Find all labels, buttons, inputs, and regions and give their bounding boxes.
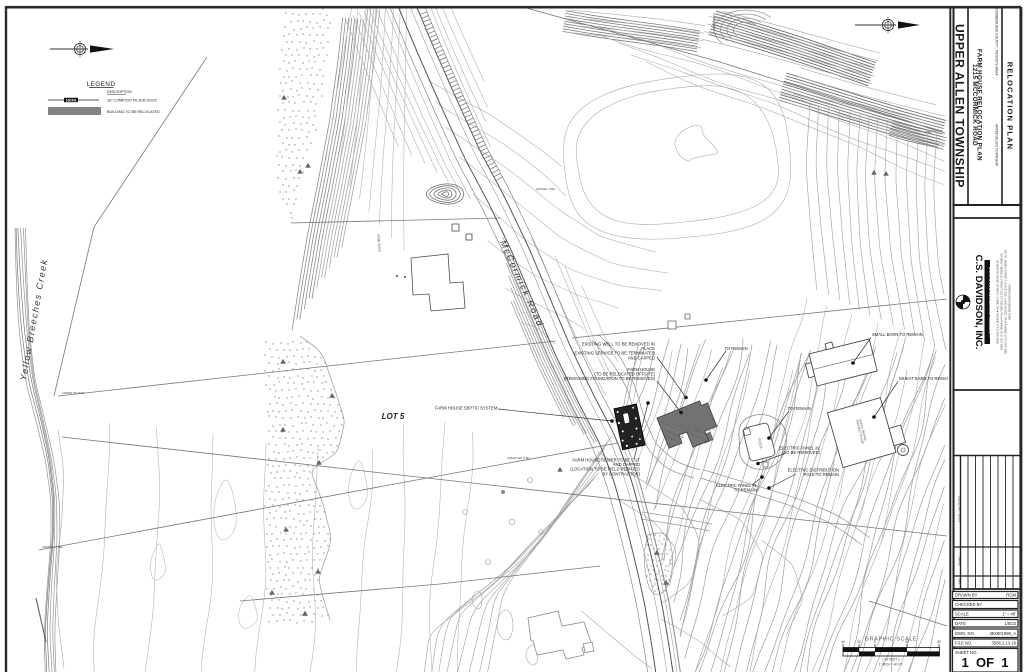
svg-text:DRAWN BY: DRAWN BY <box>955 593 978 598</box>
svg-text:50 WEST MIDDLE STREET, GETTYSB: 50 WEST MIDDLE STREET, GETTYSBURG, PA ● … <box>1000 254 1004 351</box>
svg-text:TO REMAIN: TO REMAIN <box>724 346 747 351</box>
svg-text:LOT 5: LOT 5 <box>382 412 405 421</box>
svg-text:SMALL BARN TO REMAIN: SMALL BARN TO REMAIN <box>872 332 923 337</box>
svg-text:POLE TO REMAIN: POLE TO REMAIN <box>804 472 839 477</box>
svg-text:DESCRIPTION: DESCRIPTION <box>107 90 132 94</box>
svg-text:DATE: DATE <box>955 621 966 626</box>
svg-text:35X801988_A: 35X801988_A <box>989 631 1016 636</box>
svg-text:BUILDING TO BE RELOCATED: BUILDING TO BE RELOCATED <box>107 110 160 114</box>
svg-text:80: 80 <box>937 640 941 644</box>
svg-text:LEGEND: LEGEND <box>87 81 116 88</box>
svg-text:LP#487.69' (TIE): LP#487.69' (TIE) <box>62 391 85 395</box>
svg-text:1" = 40': 1" = 40' <box>1002 611 1016 616</box>
svg-text:WHEAT BARN TO REMAIN: WHEAT BARN TO REMAIN <box>899 376 951 381</box>
svg-text:210 W. JAMES STREET, SUITE 102: 210 W. JAMES STREET, SUITE 102, LANCASTE… <box>1004 249 1008 355</box>
svg-text:(TO BE REMOVED): (TO BE REMOVED) <box>782 450 820 455</box>
svg-text:38 NORTH DUKE STREET, YORK, PA: 38 NORTH DUKE STREET, YORK, PA ● PHONE (… <box>996 260 1000 344</box>
svg-text:DATE: DATE <box>958 556 962 566</box>
svg-text:20: 20 <box>857 640 861 644</box>
svg-text:40: 40 <box>841 640 845 644</box>
svg-text:RELOCATION PLAN: RELOCATION PLAN <box>1006 62 1015 150</box>
svg-text:( IN FEET ): ( IN FEET ) <box>882 658 899 662</box>
svg-text:GRAVEL (TIE): GRAVEL (TIE) <box>536 187 555 191</box>
svg-text:0: 0 <box>874 640 876 644</box>
svg-text:C.S. DAVIDSON, INC.: C.S. DAVIDSON, INC. <box>973 255 984 350</box>
svg-text:RGM: RGM <box>1006 593 1016 598</box>
svg-text:UPPER ALLEN TOWNSHIP: UPPER ALLEN TOWNSHIP <box>995 124 999 167</box>
svg-text:LP#650.1' (TIE): LP#650.1' (TIE) <box>42 545 63 549</box>
svg-text:(REMAINING FOUNDATION TO BE RE: (REMAINING FOUNDATION TO BE REMOVED) <box>564 376 656 381</box>
svg-text:WWW.CSDAVIDSON.COM: WWW.CSDAVIDSON.COM <box>1008 284 1012 320</box>
svg-text:3566.2.13.19: 3566.2.13.19 <box>992 641 1017 646</box>
svg-text:LP#457.80' (TIE): LP#457.80' (TIE) <box>507 456 530 460</box>
svg-text:CHECKED BY: CHECKED BY <box>955 602 982 607</box>
svg-text:A SITE & CIVIL ENGINEERING COM: A SITE & CIVIL ENGINEERING COMMUNITY <box>988 267 992 338</box>
svg-text:NO.: NO. <box>958 578 962 585</box>
svg-text:DESCRIPTION: DESCRIPTION <box>958 496 962 522</box>
svg-text:GRAPHIC SCALE: GRAPHIC SCALE <box>865 637 918 643</box>
svg-text:1 OF 1: 1 OF 1 <box>962 655 1009 670</box>
svg-text:CUMBERLAND COUNTY , PENNSYLVAN: CUMBERLAND COUNTY , PENNSYLVANIA <box>995 8 999 76</box>
svg-text:FARM HOUSE RELOCATION PLAN: FARM HOUSE RELOCATION PLAN <box>976 49 983 161</box>
svg-text:AND CAPPED: AND CAPPED <box>628 355 655 360</box>
svg-text:1 INCH = 40 FT.: 1 INCH = 40 FT. <box>879 663 903 667</box>
svg-text:18" COMPOST FILTER SOCK: 18" COMPOST FILTER SOCK <box>107 99 157 103</box>
svg-text:SCALE: SCALE <box>955 611 969 616</box>
svg-text:STML BNKB: STML BNKB <box>712 14 716 31</box>
svg-text:DWG. NO.: DWG. NO. <box>955 631 975 636</box>
svg-text:FILE NO.: FILE NO. <box>955 641 972 646</box>
svg-text:40: 40 <box>905 640 909 644</box>
svg-text:FARM HOUSE SEPTIC SYSTEM: FARM HOUSE SEPTIC SYSTEM <box>435 406 498 411</box>
svg-text:TO REMAIN: TO REMAIN <box>734 488 757 493</box>
svg-text:(TIE): (TIE) <box>925 130 932 134</box>
svg-text:UPPER ALLEN TOWNSHIP: UPPER ALLEN TOWNSHIP <box>953 24 967 188</box>
svg-text:TO REMAIN: TO REMAIN <box>787 406 810 411</box>
svg-text:18CFS: 18CFS <box>66 99 77 103</box>
svg-text:1/5/23: 1/5/23 <box>1004 621 1016 626</box>
svg-text:BY CONTRACTOR): BY CONTRACTOR) <box>602 471 640 476</box>
